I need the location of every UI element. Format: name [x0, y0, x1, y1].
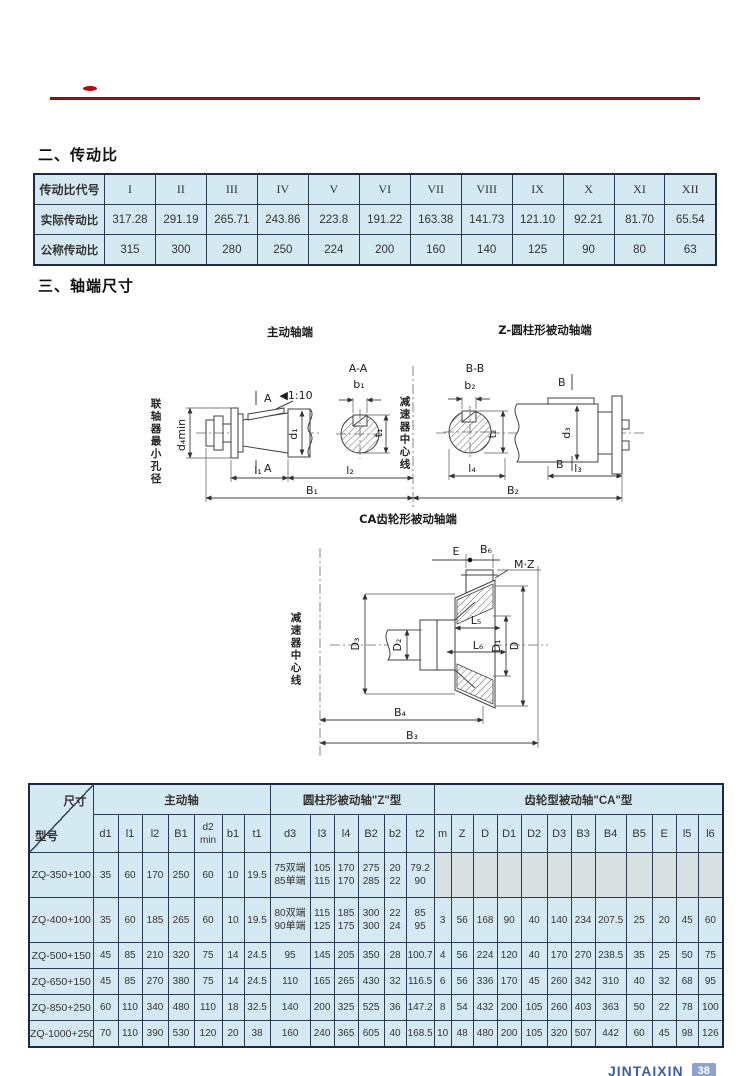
table-cell: 185	[142, 898, 168, 943]
dim-label-L5: L₅	[471, 614, 482, 627]
table-cell	[652, 853, 676, 898]
table-cell: 170	[547, 943, 571, 969]
table-cell: 100	[698, 995, 723, 1021]
drawing-title: Z-圆柱形被动轴端	[498, 323, 592, 337]
table-row: ZQ-1000+25070110390530120203816024036560…	[29, 1021, 723, 1048]
table-cell: 300300	[358, 898, 384, 943]
table-cell: 81.70	[614, 205, 665, 235]
table-cell: 20	[652, 898, 676, 943]
dim-label-b2: b₂	[464, 379, 475, 392]
column-header: D2	[521, 815, 547, 853]
column-header: l2	[142, 815, 168, 853]
table-cell: 14	[222, 969, 244, 995]
table-cell: VI	[359, 174, 410, 205]
table-cell: 35	[93, 898, 118, 943]
table-cell: 95	[270, 943, 310, 969]
table-cell: 280	[206, 235, 257, 266]
dim-label-d3: d₃	[560, 427, 573, 438]
table-cell: 36	[384, 995, 406, 1021]
model-cell: ZQ-350+100	[29, 853, 93, 898]
table-cell: 60	[194, 853, 222, 898]
table-cell: VII	[410, 174, 461, 205]
table-cell: 243.86	[257, 205, 308, 235]
table-cell: 95	[698, 969, 723, 995]
table-cell: VIII	[461, 174, 512, 205]
dim-label-l3: l₃	[574, 462, 581, 475]
table-cell: 28	[384, 943, 406, 969]
table-cell: 4	[434, 943, 451, 969]
column-header: l3	[310, 815, 334, 853]
table-cell: 140	[270, 995, 310, 1021]
table-cell: 40	[384, 1021, 406, 1048]
table-cell: XI	[614, 174, 665, 205]
model-cell: ZQ-1000+250	[29, 1021, 93, 1048]
corner-cell: 尺寸型号	[29, 784, 93, 853]
dim-label-D: D	[508, 642, 521, 650]
column-header: D	[473, 815, 497, 853]
table-cell: 250	[168, 853, 194, 898]
table-cell: 342	[571, 969, 595, 995]
corner-label-model: 型号	[35, 828, 58, 844]
corner-label-size: 尺寸	[64, 793, 87, 809]
column-header: l4	[334, 815, 358, 853]
table-cell: 45	[93, 969, 118, 995]
table-cell: 430	[358, 969, 384, 995]
table-cell: 210	[142, 943, 168, 969]
dim-label-l2: l₂	[346, 464, 353, 477]
table-cell: 116.5	[406, 969, 434, 995]
reducer-centerline-label: 减速器中心线	[290, 612, 301, 687]
table-cell: 200	[359, 235, 410, 266]
header-rule	[50, 97, 700, 100]
table-cell: 10	[222, 853, 244, 898]
table-row: ZQ-850+250601103404801101832.51402003255…	[29, 995, 723, 1021]
table-cell: 35	[93, 853, 118, 898]
table-cell: 191.22	[359, 205, 410, 235]
table-cell: 54	[451, 995, 473, 1021]
table-cell: 22	[652, 995, 676, 1021]
table-cell: 340	[142, 995, 168, 1021]
cut-mark-b-bottom: B	[556, 458, 564, 471]
table-cell: 85	[118, 943, 142, 969]
table-cell: 19.5	[244, 898, 270, 943]
table-cell: 56	[451, 898, 473, 943]
table-cell: 32.5	[244, 995, 270, 1021]
table-cell: 110	[118, 1021, 142, 1048]
table-cell: 121.10	[512, 205, 563, 235]
table-cell: 6	[434, 969, 451, 995]
table-cell: 140	[461, 235, 512, 266]
table-row: ZQ-500+1504585210320751424.5951452053502…	[29, 943, 723, 969]
table-cell: 275285	[358, 853, 384, 898]
table-cell: 160	[410, 235, 461, 266]
column-header: D3	[547, 815, 571, 853]
dim-label-d4min: d₄min	[175, 419, 188, 451]
dim-label-d1: d₁	[287, 428, 300, 439]
dim-label-b1: b₁	[353, 378, 364, 391]
model-cell: ZQ-650+150	[29, 969, 93, 995]
table-cell: 75	[698, 943, 723, 969]
dim-label-B2: B₂	[507, 484, 519, 497]
column-header: d1	[93, 815, 118, 853]
table-cell: 270	[571, 943, 595, 969]
table-cell: 80双端90单端	[270, 898, 310, 943]
table-row: 实际传动比317.28291.19265.71243.86223.8191.22…	[34, 205, 716, 235]
table-cell: 110	[270, 969, 310, 995]
table-cell	[521, 853, 547, 898]
column-header: D1	[497, 815, 521, 853]
table-cell: 126	[698, 1021, 723, 1048]
table-cell: 380	[168, 969, 194, 995]
catalog-page: 二、传动比 传动比代号IIIIIIIVVVIVIIVIIIIXXXIXII实际传…	[0, 0, 750, 1076]
dim-label-E: E	[453, 545, 460, 558]
footer: JINTAIXIN 38	[608, 1063, 716, 1076]
table-cell: 120	[194, 1021, 222, 1048]
page-number-badge: 38	[692, 1063, 716, 1076]
table-cell: 168	[473, 898, 497, 943]
table-cell: III	[206, 174, 257, 205]
table-cell: 320	[547, 1021, 571, 1048]
section-title-ratio: 二、传动比	[38, 144, 118, 165]
table-cell: 8595	[406, 898, 434, 943]
cut-mark-a-top: A	[264, 392, 272, 405]
table-cell: 200	[497, 995, 521, 1021]
dim-label-MZ: M·Z	[514, 558, 535, 571]
table-cell: 3	[434, 898, 451, 943]
table-cell: 207.5	[595, 898, 626, 943]
table-cell: 60	[118, 853, 142, 898]
logo-mark	[83, 86, 97, 91]
table-row: 传动比代号IIIIIIIVVVIVIIVIIIIXXXIXII	[34, 174, 716, 205]
table-cell: 170170	[334, 853, 358, 898]
table-cell: 480	[168, 995, 194, 1021]
table-cell	[434, 853, 451, 898]
table-cell: 40	[521, 898, 547, 943]
table-cell: 8	[434, 995, 451, 1021]
column-header: b1	[222, 815, 244, 853]
table-cell: 260	[547, 995, 571, 1021]
cylindrical-shaft-drawing: Z-圆柱形被动轴端 B-B b₂ B B l₃ l₄ B₂ d₃ t₂	[413, 323, 645, 502]
table-cell: 70	[93, 1021, 118, 1048]
table-cell: 260	[547, 969, 571, 995]
table-cell: 32	[652, 969, 676, 995]
table-cell: 10	[222, 898, 244, 943]
dim-label-B1: B₁	[306, 484, 318, 497]
dimension-table: 尺寸型号主动轴圆柱形被动轴"Z"型齿轮型被动轴"CA"型d1l1l2B1d2mi…	[28, 783, 724, 1048]
drawing-title: 主动轴端	[267, 325, 313, 339]
table-cell	[497, 853, 521, 898]
table-cell: 45	[652, 1021, 676, 1048]
table-cell: 147.2	[406, 995, 434, 1021]
table-cell: I	[105, 174, 156, 205]
table-cell: 265	[168, 898, 194, 943]
dim-label-t1: t₁	[372, 429, 385, 438]
table-cell: 25	[626, 898, 652, 943]
dim-label-l1: l₁	[254, 464, 261, 477]
model-cell: ZQ-850+250	[29, 995, 93, 1021]
table-cell: 60	[698, 898, 723, 943]
table-cell: 105	[521, 1021, 547, 1048]
table-cell: X	[563, 174, 614, 205]
table-cell: 320	[168, 943, 194, 969]
table-cell: 200	[497, 1021, 521, 1048]
dim-label-L6: L₆	[473, 639, 484, 652]
table-cell: 160	[270, 1021, 310, 1048]
table-cell: 25	[652, 943, 676, 969]
table-cell: 224	[473, 943, 497, 969]
table-cell	[547, 853, 571, 898]
table-cell: 56	[451, 943, 473, 969]
table-cell: 224	[308, 235, 359, 266]
table-cell: 19.5	[244, 853, 270, 898]
table-cell: 38	[244, 1021, 270, 1048]
table-cell: 265.71	[206, 205, 257, 235]
table-cell	[571, 853, 595, 898]
table-cell: 317.28	[105, 205, 156, 235]
table-cell: 125	[512, 235, 563, 266]
table-cell: 265	[334, 969, 358, 995]
table-cell: 390	[142, 1021, 168, 1048]
column-header: B2	[358, 815, 384, 853]
table-cell: 120	[497, 943, 521, 969]
model-cell: ZQ-400+100	[29, 898, 93, 943]
table-cell: 507	[571, 1021, 595, 1048]
column-header: l5	[676, 815, 698, 853]
table-cell: 60	[118, 898, 142, 943]
table-row: 尺寸型号主动轴圆柱形被动轴"Z"型齿轮型被动轴"CA"型	[29, 784, 723, 815]
table-cell: 165	[310, 969, 334, 995]
table-cell: 90	[497, 898, 521, 943]
table-cell: 92.21	[563, 205, 614, 235]
cut-mark-a-bottom: A	[264, 462, 272, 475]
table-cell: 350	[358, 943, 384, 969]
table-cell: II	[155, 174, 206, 205]
technical-drawing-svg: 主动轴端 A-A b₁ A ◀1:10 A l₁ l₂ B₁ d₄min d₁ …	[0, 308, 750, 778]
row-label: 公称传动比	[34, 235, 105, 266]
table-cell: 365	[334, 1021, 358, 1048]
group-header: 圆柱形被动轴"Z"型	[270, 784, 434, 815]
table-cell: 432	[473, 995, 497, 1021]
column-header: d3	[270, 815, 310, 853]
table-cell: 115125	[310, 898, 334, 943]
table-cell: 68	[676, 969, 698, 995]
cut-mark-b-top: B	[558, 376, 566, 389]
table-cell: 170	[497, 969, 521, 995]
table-cell: 238.5	[595, 943, 626, 969]
column-header: t1	[244, 815, 270, 853]
table-cell: 100.7	[406, 943, 434, 969]
table-cell: 24.5	[244, 943, 270, 969]
table-row: ZQ-650+1504585270380751424.5110165265430…	[29, 969, 723, 995]
dim-label-D2: D₂	[391, 639, 404, 652]
table-cell: 60	[626, 1021, 652, 1048]
table-cell: 310	[595, 969, 626, 995]
table-cell: 50	[676, 943, 698, 969]
table-cell: 605	[358, 1021, 384, 1048]
table-cell: 105	[521, 995, 547, 1021]
dim-label-t2: t₂	[486, 430, 499, 439]
table-cell: 45	[93, 943, 118, 969]
column-header: E	[652, 815, 676, 853]
section-label: B-B	[466, 362, 485, 375]
table-cell: 240	[310, 1021, 334, 1048]
table-cell: IX	[512, 174, 563, 205]
table-cell: 40	[626, 969, 652, 995]
table-row: ZQ-400+1003560185265601019.580双端90单端1151…	[29, 898, 723, 943]
table-cell: 20	[222, 1021, 244, 1048]
table-cell: 10	[434, 1021, 451, 1048]
driving-shaft-drawing: 主动轴端 A-A b₁ A ◀1:10 A l₁ l₂ B₁ d₄min d₁ …	[175, 325, 413, 508]
table-cell: 65.54	[665, 205, 716, 235]
table-cell: 300	[155, 235, 206, 266]
table-cell: 168.5	[406, 1021, 434, 1048]
coupling-min-bore-note: 联轴器最小孔径	[150, 398, 161, 486]
table-cell: 60	[194, 898, 222, 943]
table-cell: 2022	[384, 853, 406, 898]
table-cell: 336	[473, 969, 497, 995]
table-cell: 200	[310, 995, 334, 1021]
table-cell: 78	[676, 995, 698, 1021]
table-cell	[473, 853, 497, 898]
table-cell: 18	[222, 995, 244, 1021]
taper-label: ◀1:10	[279, 389, 312, 402]
table-cell: 140	[547, 898, 571, 943]
dim-label-l4: l₄	[468, 462, 476, 475]
column-header: l6	[698, 815, 723, 853]
table-cell: 325	[334, 995, 358, 1021]
table-cell: XII	[665, 174, 716, 205]
table-cell: 45	[676, 898, 698, 943]
table-cell: 79.290	[406, 853, 434, 898]
dim-label-B4: B₄	[394, 706, 407, 719]
table-cell: 205	[334, 943, 358, 969]
dim-label-D1: D₁	[490, 640, 503, 653]
column-header: d2min	[194, 815, 222, 853]
table-cell: 48	[451, 1021, 473, 1048]
table-cell: 442	[595, 1021, 626, 1048]
table-cell: 80	[614, 235, 665, 266]
table-cell: 480	[473, 1021, 497, 1048]
column-header: B5	[626, 815, 652, 853]
table-cell: 60	[93, 995, 118, 1021]
table-cell	[698, 853, 723, 898]
table-cell: 75双端85单端	[270, 853, 310, 898]
table-cell: 14	[222, 943, 244, 969]
section-title-shaft: 三、轴端尺寸	[38, 275, 134, 296]
dim-label-B6: B₆	[480, 543, 493, 556]
table-cell: 110	[118, 995, 142, 1021]
table-cell: 163.38	[410, 205, 461, 235]
table-cell	[676, 853, 698, 898]
table-cell: 170	[142, 853, 168, 898]
table-cell: IV	[257, 174, 308, 205]
table-cell: 45	[521, 969, 547, 995]
table-cell: 363	[595, 995, 626, 1021]
group-header: 主动轴	[93, 784, 270, 815]
table-cell: 250	[257, 235, 308, 266]
table-cell	[626, 853, 652, 898]
table-cell: 185175	[334, 898, 358, 943]
column-header: B3	[571, 815, 595, 853]
column-header: t2	[406, 815, 434, 853]
table-cell: 141.73	[461, 205, 512, 235]
table-cell: 35	[626, 943, 652, 969]
table-cell	[595, 853, 626, 898]
table-cell: 234	[571, 898, 595, 943]
table-cell: 56	[451, 969, 473, 995]
table-row: d1l1l2B1d2minb1t1d3l3l4B2b2t2mZDD1D2D3B3…	[29, 815, 723, 853]
table-cell: 403	[571, 995, 595, 1021]
table-cell: 145	[310, 943, 334, 969]
ratio-table: 传动比代号IIIIIIIVVVIVIIVIIIIXXXIXII实际传动比317.…	[33, 173, 717, 266]
table-row: 公称传动比315300280250224200160140125908063	[34, 235, 716, 266]
table-cell: 85	[118, 969, 142, 995]
table-cell: 2224	[384, 898, 406, 943]
table-cell: 223.8	[308, 205, 359, 235]
group-header: 齿轮型被动轴"CA"型	[434, 784, 723, 815]
table-cell: 75	[194, 969, 222, 995]
table-cell: 63	[665, 235, 716, 266]
table-cell: 270	[142, 969, 168, 995]
table-cell: 40	[521, 943, 547, 969]
table-cell	[451, 853, 473, 898]
table-cell: V	[308, 174, 359, 205]
column-header: b2	[384, 815, 406, 853]
dim-label-B3: B₃	[406, 729, 418, 742]
column-header: Z	[451, 815, 473, 853]
gear-shaft-drawing: CA齿轮形被动轴端 E B₆ M·Z L₅ L₆ B₄ B₃ D₃ D₂ D₁ …	[320, 512, 548, 756]
table-cell: 50	[626, 995, 652, 1021]
table-cell: 24.5	[244, 969, 270, 995]
table-cell: 315	[105, 235, 156, 266]
table-cell: 525	[358, 995, 384, 1021]
column-header: B1	[168, 815, 194, 853]
drawing-title: CA齿轮形被动轴端	[359, 512, 457, 526]
model-cell: ZQ-500+150	[29, 943, 93, 969]
brand-logo-text: JINTAIXIN	[608, 1063, 684, 1076]
row-label: 实际传动比	[34, 205, 105, 235]
row-label: 传动比代号	[34, 174, 105, 205]
table-row: ZQ-350+1003560170250601019.575双端85单端1051…	[29, 853, 723, 898]
section-label: A-A	[349, 362, 368, 375]
table-cell: 98	[676, 1021, 698, 1048]
table-cell: 32	[384, 969, 406, 995]
table-cell: 105115	[310, 853, 334, 898]
table-cell: 110	[194, 995, 222, 1021]
table-cell: 530	[168, 1021, 194, 1048]
column-header: B4	[595, 815, 626, 853]
table-cell: 90	[563, 235, 614, 266]
table-cell: 291.19	[155, 205, 206, 235]
column-header: l1	[118, 815, 142, 853]
table-cell: 75	[194, 943, 222, 969]
dim-label-D3: D₃	[349, 638, 362, 651]
column-header: m	[434, 815, 451, 853]
reducer-centerline-label: 减速器中心线	[399, 396, 410, 471]
